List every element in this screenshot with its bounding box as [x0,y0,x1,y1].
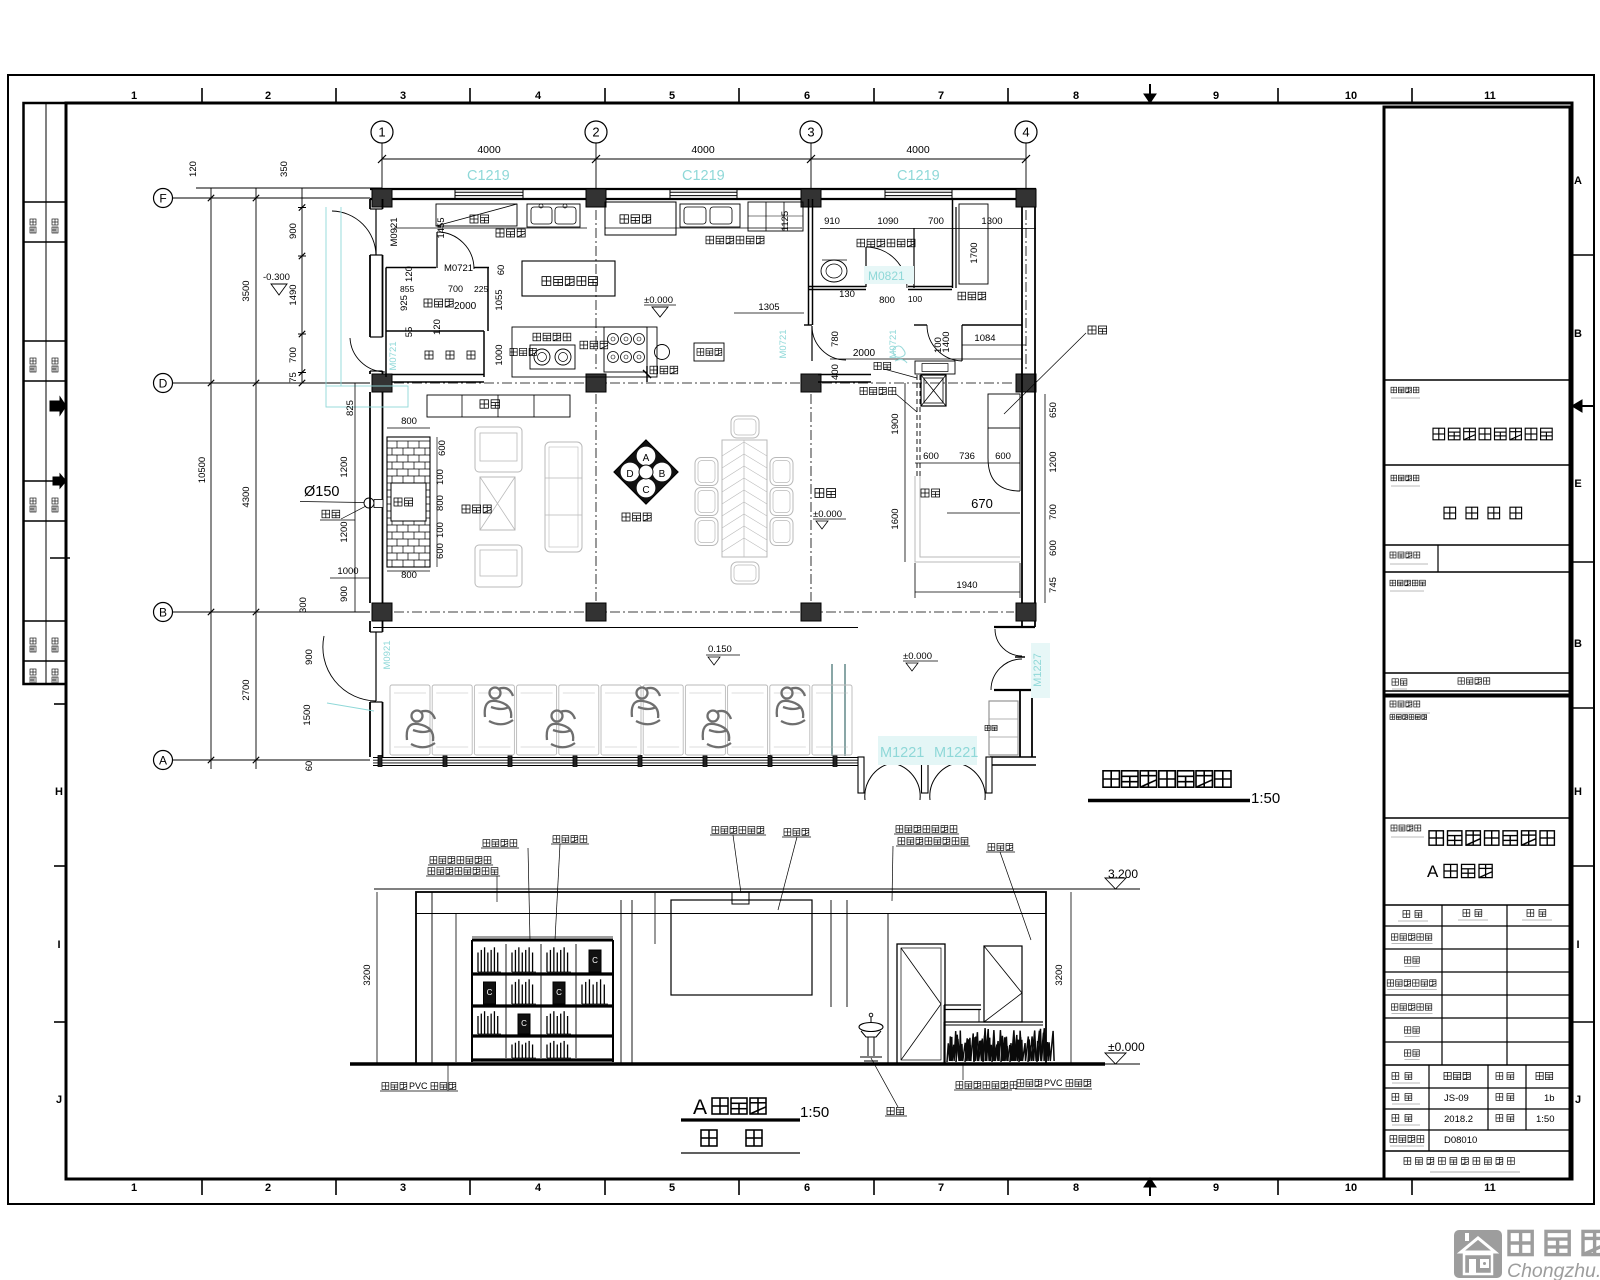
svg-text:4: 4 [535,1182,542,1194]
svg-text:5: 5 [669,1182,675,1194]
svg-text:8: 8 [1073,90,1079,102]
svg-text:1500: 1500 [302,704,313,725]
svg-text:2: 2 [265,1182,271,1194]
svg-text:600: 600 [1048,540,1059,556]
svg-text:800: 800 [879,295,895,306]
svg-text:B: B [659,469,666,480]
svg-text:C1219: C1219 [467,168,510,184]
svg-text:M0821: M0821 [868,269,905,283]
svg-text:A: A [1574,175,1582,187]
svg-text:736: 736 [959,451,975,462]
svg-text:600: 600 [923,451,939,462]
svg-text:M0721: M0721 [444,263,473,274]
svg-text:Chongzhu.cn: Chongzhu.cn [1507,1260,1600,1280]
svg-text:7: 7 [938,1182,944,1194]
svg-text:I: I [57,939,60,951]
svg-text:7: 7 [938,90,944,102]
svg-text:225: 225 [474,284,488,294]
svg-text:120: 120 [432,319,443,335]
svg-text:1400: 1400 [941,331,952,352]
svg-text:C1219: C1219 [897,168,940,184]
svg-text:C1219: C1219 [682,168,725,184]
svg-text:2018.2: 2018.2 [1444,1114,1473,1125]
svg-text:JS-09: JS-09 [1444,1093,1469,1104]
svg-text:700: 700 [448,284,463,294]
svg-text:800: 800 [401,570,417,581]
svg-text:4000: 4000 [477,144,501,156]
svg-text:2: 2 [265,90,271,102]
svg-text:B: B [1574,638,1582,650]
svg-text:-0.300: -0.300 [263,272,290,283]
svg-text:120: 120 [404,266,415,282]
svg-text:10: 10 [1345,90,1357,102]
svg-text:600: 600 [437,440,448,456]
svg-text:A: A [1427,862,1439,881]
svg-text:700: 700 [928,216,944,227]
svg-text:1: 1 [131,90,137,102]
svg-text:900: 900 [304,649,315,665]
svg-text:8: 8 [1073,1182,1079,1194]
svg-text:11: 11 [1484,90,1496,102]
svg-text:4300: 4300 [241,486,252,507]
svg-text:0.150: 0.150 [708,644,732,655]
svg-text:120: 120 [188,161,199,177]
svg-text:700: 700 [288,347,299,363]
svg-text:900: 900 [339,586,350,602]
svg-text:6: 6 [804,1182,810,1194]
svg-text:1: 1 [131,1182,137,1194]
svg-text:2: 2 [592,125,599,140]
svg-text:1: 1 [378,125,385,140]
svg-text:1900: 1900 [890,413,901,434]
svg-text:1084: 1084 [974,333,995,344]
svg-text:1090: 1090 [877,216,898,227]
svg-text:C: C [487,988,493,997]
svg-text:C: C [556,988,562,997]
svg-text:A: A [643,453,650,464]
svg-text:1940: 1940 [956,580,977,591]
svg-text:910: 910 [824,216,840,227]
svg-text:3200: 3200 [362,964,373,985]
svg-text:M1221: M1221 [934,745,978,761]
svg-text:400: 400 [830,364,841,380]
svg-text:PVC: PVC [1044,1078,1063,1088]
svg-text:±0.000: ±0.000 [1108,1040,1145,1054]
svg-text:1305: 1305 [758,302,779,313]
svg-text:A: A [693,1096,707,1119]
svg-text:I: I [1576,939,1579,951]
svg-text:C: C [642,485,649,496]
svg-text:745: 745 [1048,577,1059,593]
svg-text:5: 5 [669,90,675,102]
svg-text:4000: 4000 [691,144,715,156]
svg-text:130: 130 [839,289,855,300]
svg-text:10: 10 [1345,1182,1357,1194]
svg-text:1490: 1490 [288,284,299,305]
svg-text:D: D [159,377,168,391]
svg-text:4: 4 [535,90,542,102]
svg-text:1125: 1125 [780,211,791,231]
svg-text:Ø150: Ø150 [304,484,339,500]
svg-text:D: D [626,469,633,480]
svg-text:350: 350 [279,161,290,177]
svg-text:1455: 1455 [436,217,447,238]
svg-text:H: H [55,786,63,798]
svg-text:900: 900 [288,223,299,239]
svg-text:100: 100 [908,294,922,304]
svg-text:650: 650 [1048,402,1059,418]
svg-text:700: 700 [1048,504,1059,520]
svg-text:3: 3 [400,90,406,102]
svg-text:3: 3 [400,1182,406,1194]
svg-text:3500: 3500 [241,280,252,301]
svg-text:855: 855 [400,284,414,294]
svg-text:±0.000: ±0.000 [903,651,932,662]
svg-text:1200: 1200 [339,456,350,477]
svg-text:±0.000: ±0.000 [813,509,842,520]
svg-text:J: J [1575,1094,1581,1106]
svg-text:F: F [159,192,166,206]
svg-text:825: 825 [345,400,356,416]
svg-text:M0921: M0921 [389,217,400,246]
svg-text:1200: 1200 [1048,451,1059,472]
svg-text:PVC: PVC [409,1081,428,1091]
svg-text:11: 11 [1484,1182,1496,1194]
svg-text:800: 800 [401,416,417,427]
svg-text:1:50: 1:50 [1251,790,1280,807]
svg-text:2000: 2000 [853,348,876,359]
svg-text:60: 60 [496,265,507,276]
svg-text:1000: 1000 [494,344,505,365]
svg-text:10500: 10500 [197,457,208,483]
svg-text:C: C [592,956,598,965]
svg-text:925: 925 [399,295,410,311]
svg-text:2000: 2000 [454,301,477,312]
svg-text:1700: 1700 [969,242,980,263]
svg-text:1:50: 1:50 [800,1104,829,1121]
svg-text:M1227: M1227 [1032,653,1044,687]
svg-text:M0721: M0721 [388,341,399,370]
svg-text:1b: 1b [1544,1093,1555,1104]
svg-text:1200: 1200 [339,521,350,542]
svg-text:M0921: M0921 [382,640,393,669]
svg-text:A: A [159,754,167,768]
svg-text:±0.000: ±0.000 [644,295,673,306]
svg-text:3: 3 [807,125,814,140]
svg-text:H: H [1574,786,1582,798]
svg-text:B: B [159,606,167,620]
svg-text:M1221: M1221 [880,745,924,761]
svg-text:M0721: M0721 [778,329,789,358]
svg-text:780: 780 [830,331,841,347]
svg-text:E: E [1574,478,1581,490]
svg-text:D08010: D08010 [1444,1135,1477,1146]
svg-text:C: C [521,1019,527,1028]
svg-text:2700: 2700 [241,679,252,700]
svg-text:1600: 1600 [890,508,901,529]
svg-text:3200: 3200 [1054,964,1065,985]
svg-text:4000: 4000 [906,144,930,156]
svg-text:B: B [1574,328,1582,340]
svg-text:6: 6 [804,90,810,102]
svg-text:670: 670 [971,496,993,511]
svg-text:55: 55 [404,327,415,338]
svg-text:60: 60 [304,761,315,772]
svg-text:9: 9 [1213,1182,1219,1194]
svg-text:1055: 1055 [494,289,505,310]
svg-text:4: 4 [1022,125,1029,140]
svg-text:1300: 1300 [981,216,1002,227]
svg-text:75: 75 [288,372,299,383]
svg-text:600: 600 [995,451,1011,462]
svg-text:3.200: 3.200 [1108,867,1138,881]
svg-text:9: 9 [1213,90,1219,102]
svg-text:300: 300 [298,597,309,613]
svg-text:J: J [56,1094,62,1106]
svg-text:1:50: 1:50 [1536,1114,1555,1125]
